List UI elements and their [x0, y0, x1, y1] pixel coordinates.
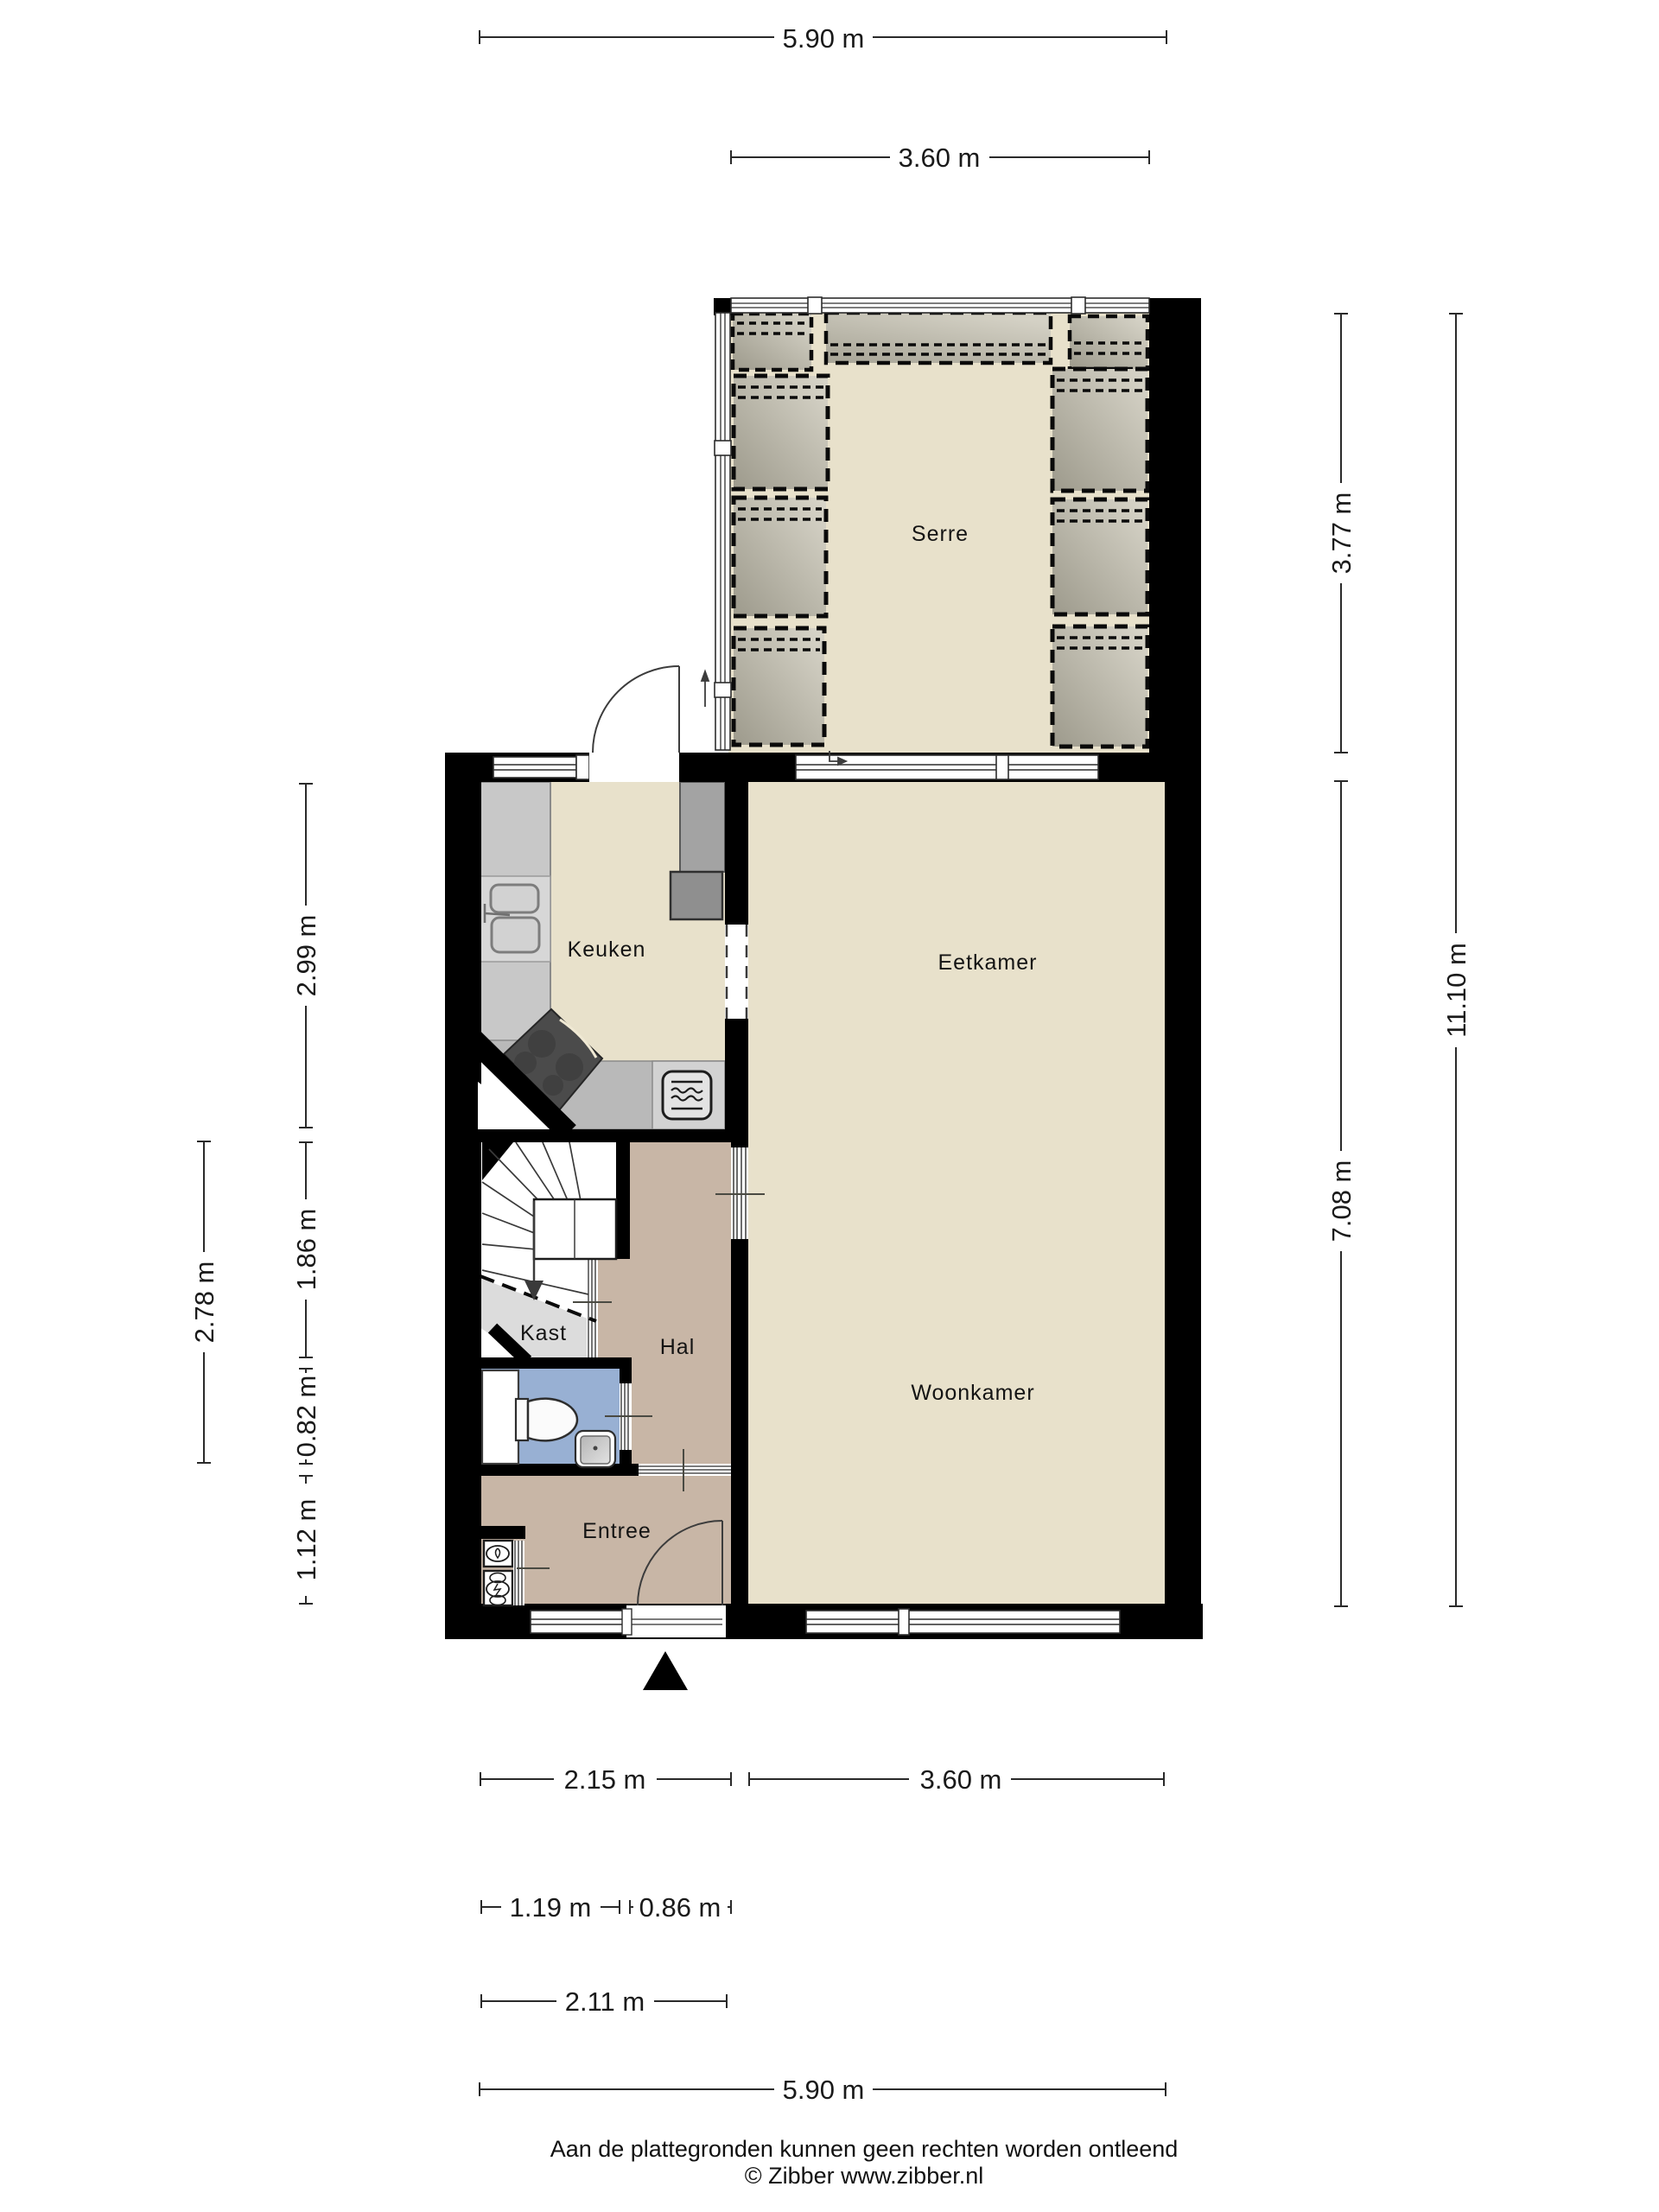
svg-text:Woonkamer: Woonkamer — [911, 1381, 1034, 1405]
svg-text:7.08 m: 7.08 m — [1326, 1160, 1357, 1243]
svg-text:Entree: Entree — [582, 1519, 652, 1543]
svg-text:5.90 m: 5.90 m — [783, 23, 865, 54]
svg-text:3.60 m: 3.60 m — [920, 1764, 1002, 1795]
svg-text:2.78 m: 2.78 m — [189, 1262, 219, 1344]
svg-text:Eetkamer: Eetkamer — [938, 950, 1038, 975]
svg-text:1.12 m: 1.12 m — [291, 1499, 321, 1581]
svg-text:11.10 m: 11.10 m — [1441, 943, 1471, 1038]
svg-text:2.11 m: 2.11 m — [565, 1986, 645, 2017]
svg-text:Serre: Serre — [912, 522, 969, 546]
svg-text:5.90 m: 5.90 m — [783, 2075, 865, 2105]
svg-text:1.86 m: 1.86 m — [291, 1209, 321, 1291]
svg-text:Kast: Kast — [520, 1321, 567, 1345]
svg-text:3.77 m: 3.77 m — [1326, 493, 1357, 575]
svg-text:© Zibber www.zibber.nl: © Zibber www.zibber.nl — [745, 2163, 984, 2189]
svg-text:1.19 m: 1.19 m — [510, 1892, 592, 1923]
svg-text:Aan de plattegronden kunnen ge: Aan de plattegronden kunnen geen rechten… — [550, 2136, 1179, 2162]
svg-text:2.99 m: 2.99 m — [291, 915, 321, 997]
svg-text:3.60 m: 3.60 m — [899, 143, 981, 173]
svg-text:Hal: Hal — [660, 1335, 696, 1359]
svg-text:0.86 m: 0.86 m — [639, 1892, 721, 1923]
svg-text:2.15 m: 2.15 m — [564, 1764, 646, 1795]
svg-text:Keuken: Keuken — [568, 938, 646, 962]
svg-text:0.82 m: 0.82 m — [291, 1376, 321, 1458]
